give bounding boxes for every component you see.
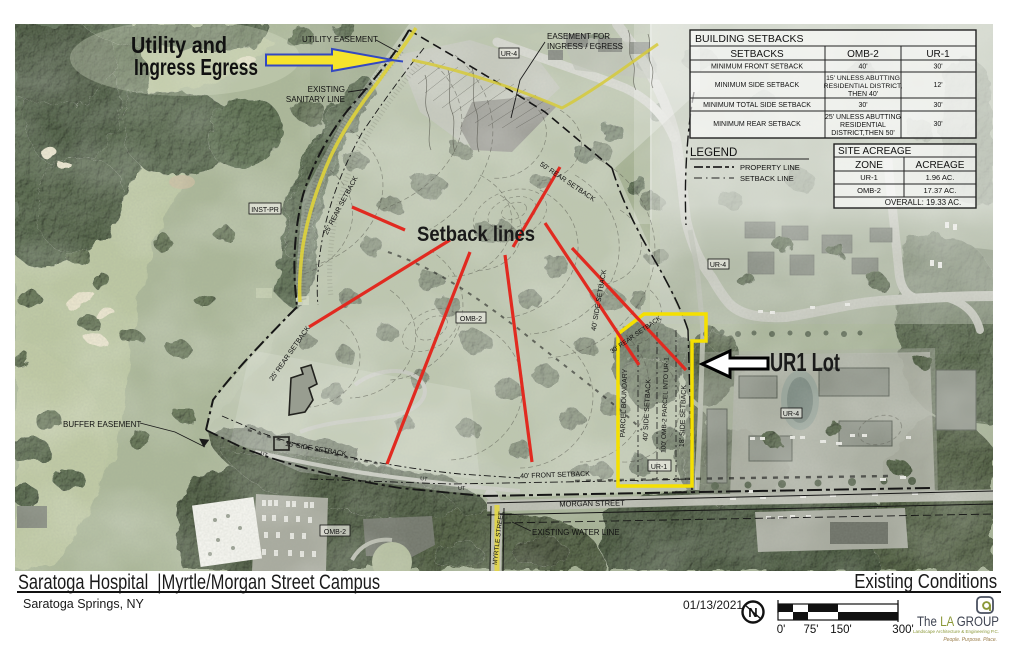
svg-text:OVERALL: 19.33 AC.: OVERALL: 19.33 AC. [885, 198, 962, 207]
svg-text:MORGAN STREET: MORGAN STREET [559, 498, 625, 508]
svg-text:UR1 Lot: UR1 Lot [770, 347, 840, 377]
svg-text:MINIMUM FRONT SETBACK: MINIMUM FRONT SETBACK [711, 64, 803, 71]
svg-text:30': 30' [858, 102, 867, 109]
svg-text:UR-1: UR-1 [926, 49, 950, 60]
svg-text:ACREAGE: ACREAGE [916, 160, 965, 171]
svg-text:MINIMUM TOTAL SIDE SETBACK: MINIMUM TOTAL SIDE SETBACK [703, 102, 811, 109]
svg-text:Setback lines: Setback lines [417, 223, 535, 246]
svg-text:12': 12' [933, 82, 942, 89]
svg-text:LEGEND: LEGEND [690, 147, 737, 159]
svg-text:EASEMENT FOR: EASEMENT FOR [547, 32, 610, 41]
svg-text:OMB-2: OMB-2 [847, 49, 879, 60]
svg-text:BUFFER EASEMENT: BUFFER EASEMENT [63, 420, 141, 429]
svg-text:UR-1: UR-1 [860, 173, 878, 182]
svg-text:15' UNLESS ABUTTING: 15' UNLESS ABUTTING [826, 75, 900, 82]
svg-text:OMB-2: OMB-2 [324, 529, 346, 536]
svg-text:30': 30' [933, 64, 942, 71]
svg-text:RESIDENTIAL DISTRICT,: RESIDENTIAL DISTRICT, [824, 83, 903, 90]
svg-text:OMB-2: OMB-2 [857, 186, 881, 195]
svg-text:UR-4: UR-4 [710, 262, 726, 269]
svg-text:INST-PR: INST-PR [251, 207, 279, 214]
svg-text:Ingress Egress: Ingress Egress [134, 54, 258, 80]
svg-text:1.96 AC.: 1.96 AC. [926, 173, 955, 182]
svg-text:SITE ACREAGE: SITE ACREAGE [838, 146, 912, 157]
svg-text:UR-4: UR-4 [783, 411, 799, 418]
svg-text:0': 0' [777, 624, 786, 636]
svg-text:300': 300' [892, 624, 913, 636]
svg-text:People. Purpose. Place.: People. Purpose. Place. [943, 637, 997, 643]
svg-text:THEN 40': THEN 40' [848, 91, 878, 98]
svg-text:17.37 AC.: 17.37 AC. [924, 186, 957, 195]
svg-text:RESIDENTIAL: RESIDENTIAL [840, 122, 886, 129]
svg-text:DISTRICT,THEN 50': DISTRICT,THEN 50' [831, 130, 895, 137]
svg-text:UR-1: UR-1 [651, 464, 667, 471]
svg-text:Landscape Architecture & Engin: Landscape Architecture & Engineering P.C… [913, 629, 999, 634]
svg-text:150': 150' [830, 624, 851, 636]
svg-text:INGRESS / EGRESS: INGRESS / EGRESS [547, 42, 623, 51]
svg-text:30': 30' [933, 102, 942, 109]
svg-text:SETBACK LINE: SETBACK LINE [740, 174, 794, 183]
svg-text:75': 75' [804, 624, 819, 636]
svg-text:PROPERTY LINE: PROPERTY LINE [740, 163, 800, 172]
svg-text:SETBACKS: SETBACKS [730, 49, 784, 60]
svg-text:UT: UT [420, 476, 429, 483]
svg-text:BUILDING SETBACKS: BUILDING SETBACKS [695, 33, 804, 45]
svg-text:UTILITY EASEMENT: UTILITY EASEMENT [302, 35, 378, 44]
svg-text:EXISTING: EXISTING [308, 85, 345, 94]
svg-text:40': 40' [858, 64, 867, 71]
svg-text:30': 30' [933, 121, 942, 128]
svg-text:25' UNLESS ABUTTING: 25' UNLESS ABUTTING [825, 114, 901, 121]
svg-text:EXISTING WATER LINE: EXISTING WATER LINE [532, 528, 620, 537]
svg-text:MINIMUM REAR SETBACK: MINIMUM REAR SETBACK [713, 121, 801, 128]
svg-text:The LA GROUP: The LA GROUP [917, 613, 999, 629]
svg-text:ZONE: ZONE [855, 160, 883, 171]
svg-text:MINIMUM SIDE SETBACK: MINIMUM SIDE SETBACK [715, 82, 800, 89]
svg-text:UT: UT [458, 486, 466, 492]
svg-text:UR-4: UR-4 [501, 51, 517, 58]
svg-text:OMB-2: OMB-2 [460, 316, 482, 323]
svg-text:SANITARY LINE: SANITARY LINE [286, 95, 345, 104]
